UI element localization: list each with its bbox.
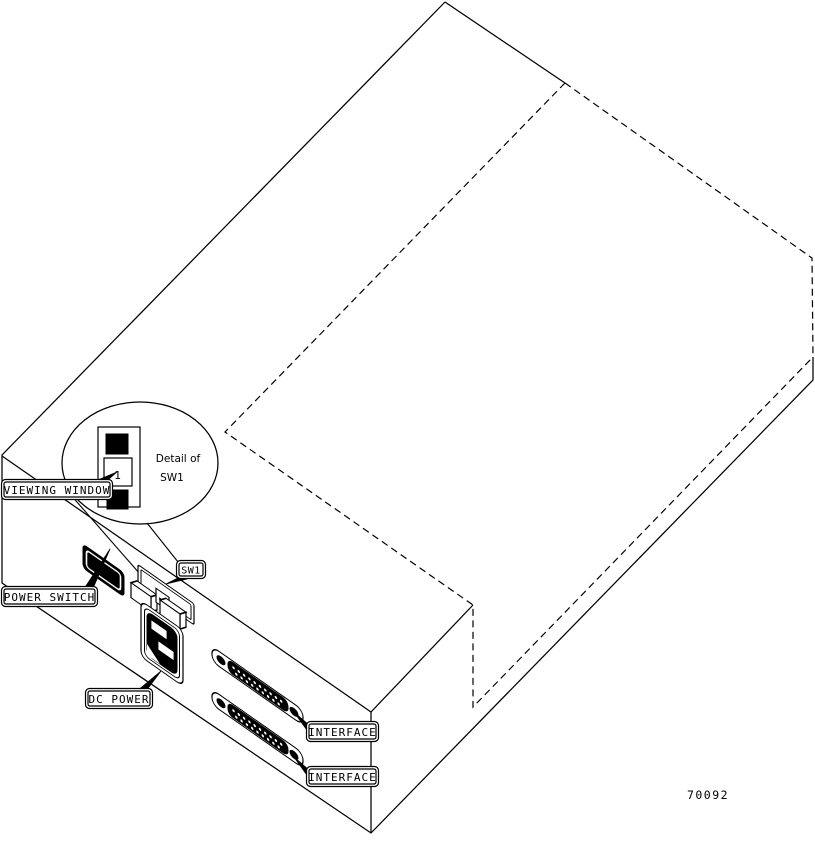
sw1-detail-digit: 1	[114, 469, 122, 482]
rim-front-edge	[371, 605, 473, 712]
callout-label: VIEWING WINDOW	[4, 484, 111, 497]
callout-label: SW1	[181, 566, 201, 577]
callout-label: POWER SWITCH	[4, 591, 95, 604]
cover-right-edges	[565, 83, 813, 357]
figure-number: 70092	[687, 788, 729, 802]
callout-label: INTERFACE	[308, 771, 377, 784]
chassis-top-right-edge	[445, 2, 565, 83]
cover-outline	[225, 83, 813, 707]
cover-left-front-edges	[225, 83, 812, 707]
callout-interface-2: INTERFACE	[294, 757, 379, 787]
callout-sw1: SW1	[166, 561, 206, 585]
diagram-page: 1 Detail of SW1	[0, 0, 815, 844]
detail-caption-line2: SW1	[160, 472, 184, 484]
detail-caption-line1: Detail of	[156, 453, 201, 465]
callout-label: DC POWER	[89, 693, 150, 706]
sw1-detail-top-square	[106, 434, 128, 454]
hardware-rear-panel-diagram: 1 Detail of SW1	[0, 0, 815, 844]
callout-dc-power: DC POWER	[86, 671, 162, 709]
callout-label: INTERFACE	[308, 726, 377, 739]
callout-interface-1: INTERFACE	[294, 712, 379, 742]
